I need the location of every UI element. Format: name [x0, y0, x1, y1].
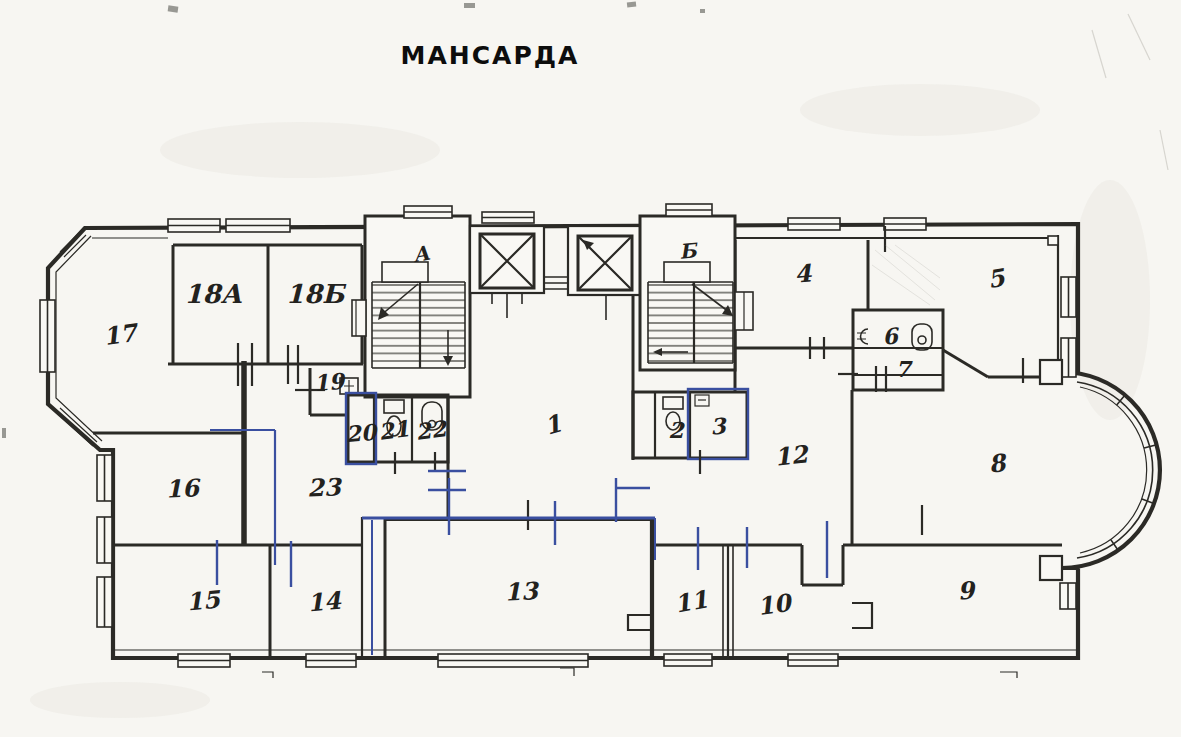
room-label-20: 20 [345, 418, 380, 447]
room-label-6: 6 [881, 322, 901, 349]
room-label-14: 14 [306, 585, 343, 617]
scanned-floor-plan-page: МАНСАРДА А Б 17 18А 18Б 19 20 21 22 23 1… [0, 0, 1181, 737]
room-label-19: 19 [313, 367, 348, 396]
room-label-3: 3 [709, 412, 728, 439]
bay-window [1040, 360, 1156, 580]
room-label-4: 4 [793, 258, 813, 288]
page-title: МАНСАРДА [401, 41, 580, 70]
stairwell-b [640, 216, 753, 370]
room-label-8: 8 [987, 448, 1010, 479]
room-label-21: 21 [377, 415, 411, 445]
scan-artifacts [2, 1, 705, 438]
room-label-18a: 18А [184, 279, 242, 309]
pencil-shading [872, 245, 940, 305]
floor-plan-drawing: МАНСАРДА А Б 17 18А 18Б 19 20 21 22 23 1… [0, 0, 1181, 737]
room-label-1: 1 [541, 408, 565, 440]
elevator-shafts [470, 226, 644, 320]
room-label-9: 9 [956, 575, 977, 606]
room-label-10: 10 [755, 588, 794, 622]
room-label-7: 7 [895, 356, 913, 382]
sanitary-block-2-3 [633, 389, 748, 459]
room-label-12: 12 [773, 439, 812, 472]
room-label-17: 17 [101, 317, 141, 351]
room-label-16: 16 [165, 473, 202, 504]
stairwell-a [340, 216, 470, 397]
room-label-5: 5 [985, 263, 1008, 295]
room-labels: 17 18А 18Б 19 20 21 22 23 16 15 14 13 1 … [101, 258, 1009, 621]
room-label-11: 11 [672, 584, 710, 618]
room-label-2: 2 [668, 417, 685, 443]
room-label-13: 13 [504, 576, 541, 607]
room-label-18b: 18Б [286, 279, 347, 309]
room-label-23: 23 [307, 472, 344, 502]
blue-annotations [210, 430, 827, 655]
room-label-22: 22 [414, 415, 450, 445]
room-label-15: 15 [185, 584, 222, 616]
